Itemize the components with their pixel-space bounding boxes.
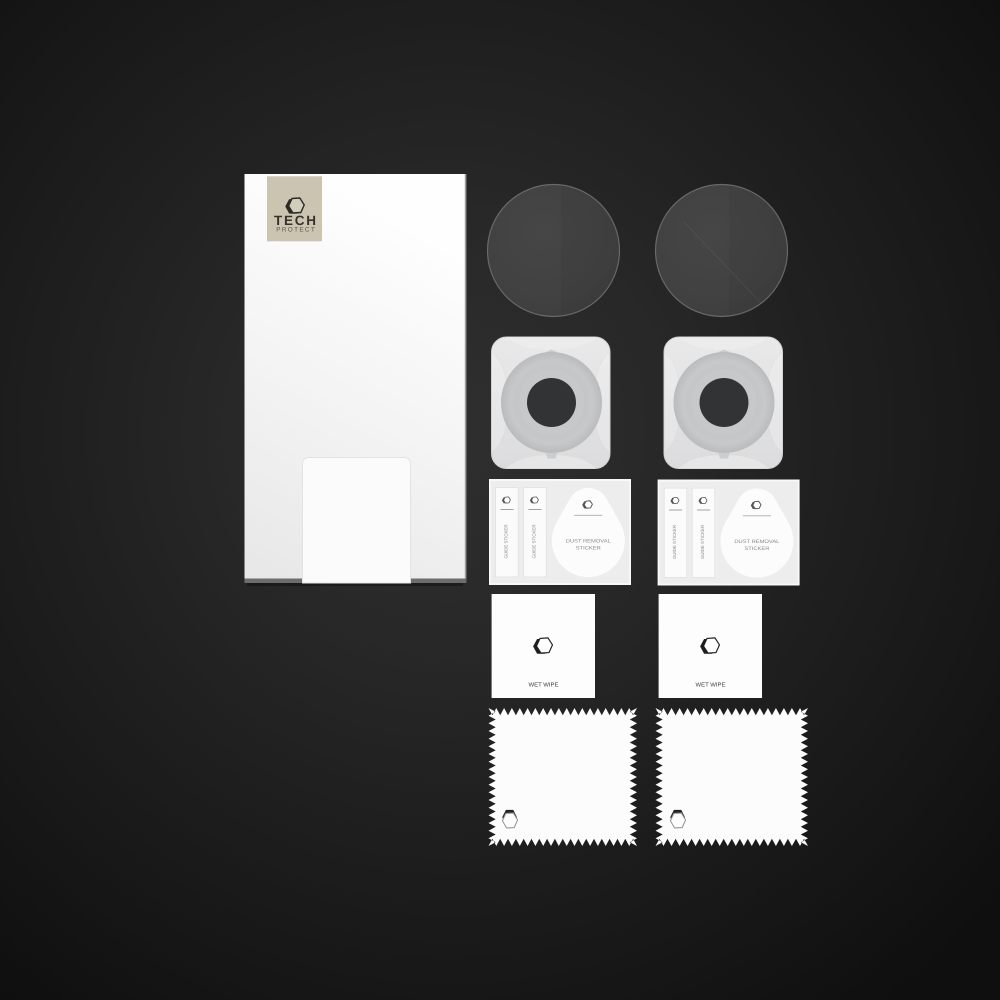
svg-text:STICKER: STICKER [576,545,601,551]
svg-text:DUST REMOVAL: DUST REMOVAL [734,539,779,545]
svg-text:PROTECT: PROTECT [276,227,315,234]
svg-text:GUIDE STICKER: GUIDE STICKER [531,524,536,559]
svg-text:GUIDE STICKER: GUIDE STICKER [672,524,677,559]
svg-text:GUIDE STICKER: GUIDE STICKER [700,524,705,559]
svg-text:STICKER: STICKER [744,546,769,552]
svg-text:DUST REMOVAL: DUST REMOVAL [566,539,611,545]
svg-text:WET WIPE: WET WIPE [696,683,726,689]
svg-text:WET WIPE: WET WIPE [529,683,559,689]
svg-text:GUIDE STICKER: GUIDE STICKER [503,524,508,559]
